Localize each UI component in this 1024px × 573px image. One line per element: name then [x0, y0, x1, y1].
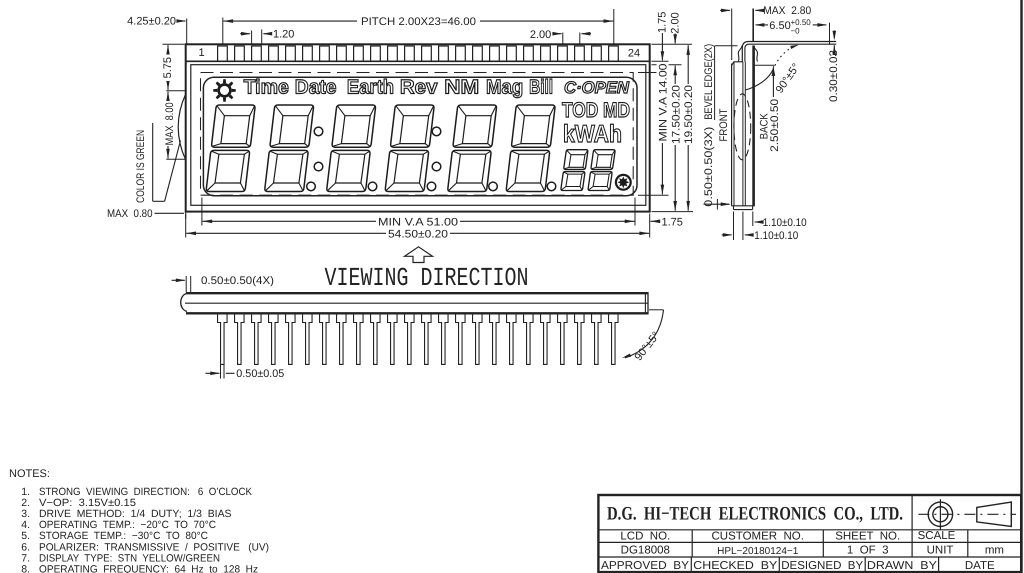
- svg-text:VIEWING DIRECTION: VIEWING DIRECTION: [325, 263, 529, 293]
- svg-text:MIN V.A 51.00: MIN V.A 51.00: [378, 216, 458, 228]
- svg-text:UNIT: UNIT: [927, 544, 954, 556]
- svg-text:1.75: 1.75: [662, 216, 683, 228]
- svg-text:90°±5°: 90°±5°: [633, 330, 663, 364]
- svg-text:2.00: 2.00: [530, 29, 551, 41]
- svg-text:Mag: Mag: [486, 77, 523, 99]
- svg-text:MAX 8.00: MAX 8.00: [164, 102, 176, 145]
- svg-text:BEVEL EDGE(2X): BEVEL EDGE(2X): [703, 44, 715, 120]
- svg-text:0.50±0.05: 0.50±0.05: [236, 368, 284, 380]
- svg-text:1 OF 3: 1 OF 3: [847, 544, 889, 556]
- svg-text:CUSTOMER NO.: CUSTOMER NO.: [711, 531, 803, 543]
- svg-text:kWAh: kWAh: [563, 121, 622, 148]
- svg-text:−0: −0: [791, 26, 801, 35]
- svg-text:Date: Date: [295, 77, 337, 99]
- svg-text:CHECKED BY: CHECKED BY: [693, 560, 777, 572]
- svg-text:4.25±0.20: 4.25±0.20: [127, 16, 176, 28]
- svg-text:24: 24: [628, 48, 640, 60]
- svg-text:2.50±0.50: 2.50±0.50: [769, 99, 781, 152]
- svg-text:DESIGNED BY: DESIGNED BY: [781, 560, 863, 572]
- svg-text:DATE: DATE: [965, 560, 995, 572]
- svg-text:0.50±0.50(4X): 0.50±0.50(4X): [201, 275, 274, 287]
- svg-text:MIN V.A 14.00: MIN V.A 14.00: [658, 64, 670, 142]
- svg-text:1.10±0.10: 1.10±0.10: [763, 217, 807, 229]
- svg-text:2.00: 2.00: [669, 12, 681, 33]
- svg-text:FRONT: FRONT: [718, 108, 730, 141]
- svg-text:C·OPEN: C·OPEN: [564, 79, 630, 97]
- svg-text:MAX 2.80: MAX 2.80: [763, 5, 811, 17]
- svg-text:mm: mm: [985, 544, 1004, 556]
- svg-text:NM: NM: [444, 77, 479, 99]
- svg-text:MAX 0.80: MAX 0.80: [107, 208, 153, 220]
- svg-text:OPERATING FREQUENCY: 64 Hz: OPERATING FREQUENCY: 64 Hz to 128 Hz: [39, 563, 258, 573]
- svg-text:D.G. HI−TECH ELECTRONICS CO: D.G. HI−TECH ELECTRONICS CO., LTD.: [607, 504, 903, 525]
- svg-text:DRAWN BY: DRAWN BY: [867, 560, 937, 572]
- svg-text:NOTES:: NOTES:: [9, 468, 50, 480]
- svg-text:0.50±0.50(3X): 0.50±0.50(3X): [703, 127, 715, 207]
- svg-text:LCD NO.: LCD NO.: [620, 531, 670, 543]
- svg-text:6.50: 6.50: [769, 20, 790, 32]
- svg-text:1.75: 1.75: [656, 12, 668, 33]
- svg-text:1.10±0.10: 1.10±0.10: [754, 230, 798, 242]
- svg-text:8.: 8.: [21, 563, 30, 573]
- svg-text:DG18008: DG18008: [621, 544, 670, 556]
- svg-text:Time: Time: [244, 77, 289, 99]
- svg-text:HPL−20180124−1: HPL−20180124−1: [717, 546, 799, 557]
- svg-text:0.30±0.03: 0.30±0.03: [828, 50, 840, 102]
- svg-text:SHEET NO.: SHEET NO.: [835, 531, 900, 543]
- svg-text:90°±5°: 90°±5°: [774, 61, 803, 95]
- svg-text:Bill: Bill: [529, 77, 553, 99]
- svg-text:1: 1: [198, 47, 204, 59]
- svg-text:COLOR IS GREEN: COLOR IS GREEN: [135, 130, 147, 203]
- svg-text:19.50±0.20: 19.50±0.20: [683, 85, 695, 144]
- svg-text:1.20: 1.20: [273, 28, 294, 40]
- svg-text:APPROVED BY: APPROVED BY: [601, 560, 689, 572]
- svg-text:SCALE: SCALE: [918, 530, 956, 542]
- svg-text:Rev: Rev: [400, 77, 438, 99]
- svg-text:TOD MD: TOD MD: [562, 99, 630, 122]
- svg-text:5.75: 5.75: [162, 57, 174, 78]
- svg-text:PITCH 2.00X23=46.00: PITCH 2.00X23=46.00: [361, 16, 476, 28]
- svg-text:Earth: Earth: [347, 77, 394, 99]
- svg-text:17.50±0.20: 17.50±0.20: [671, 85, 683, 144]
- svg-text:54.50±0.20: 54.50±0.20: [388, 228, 448, 240]
